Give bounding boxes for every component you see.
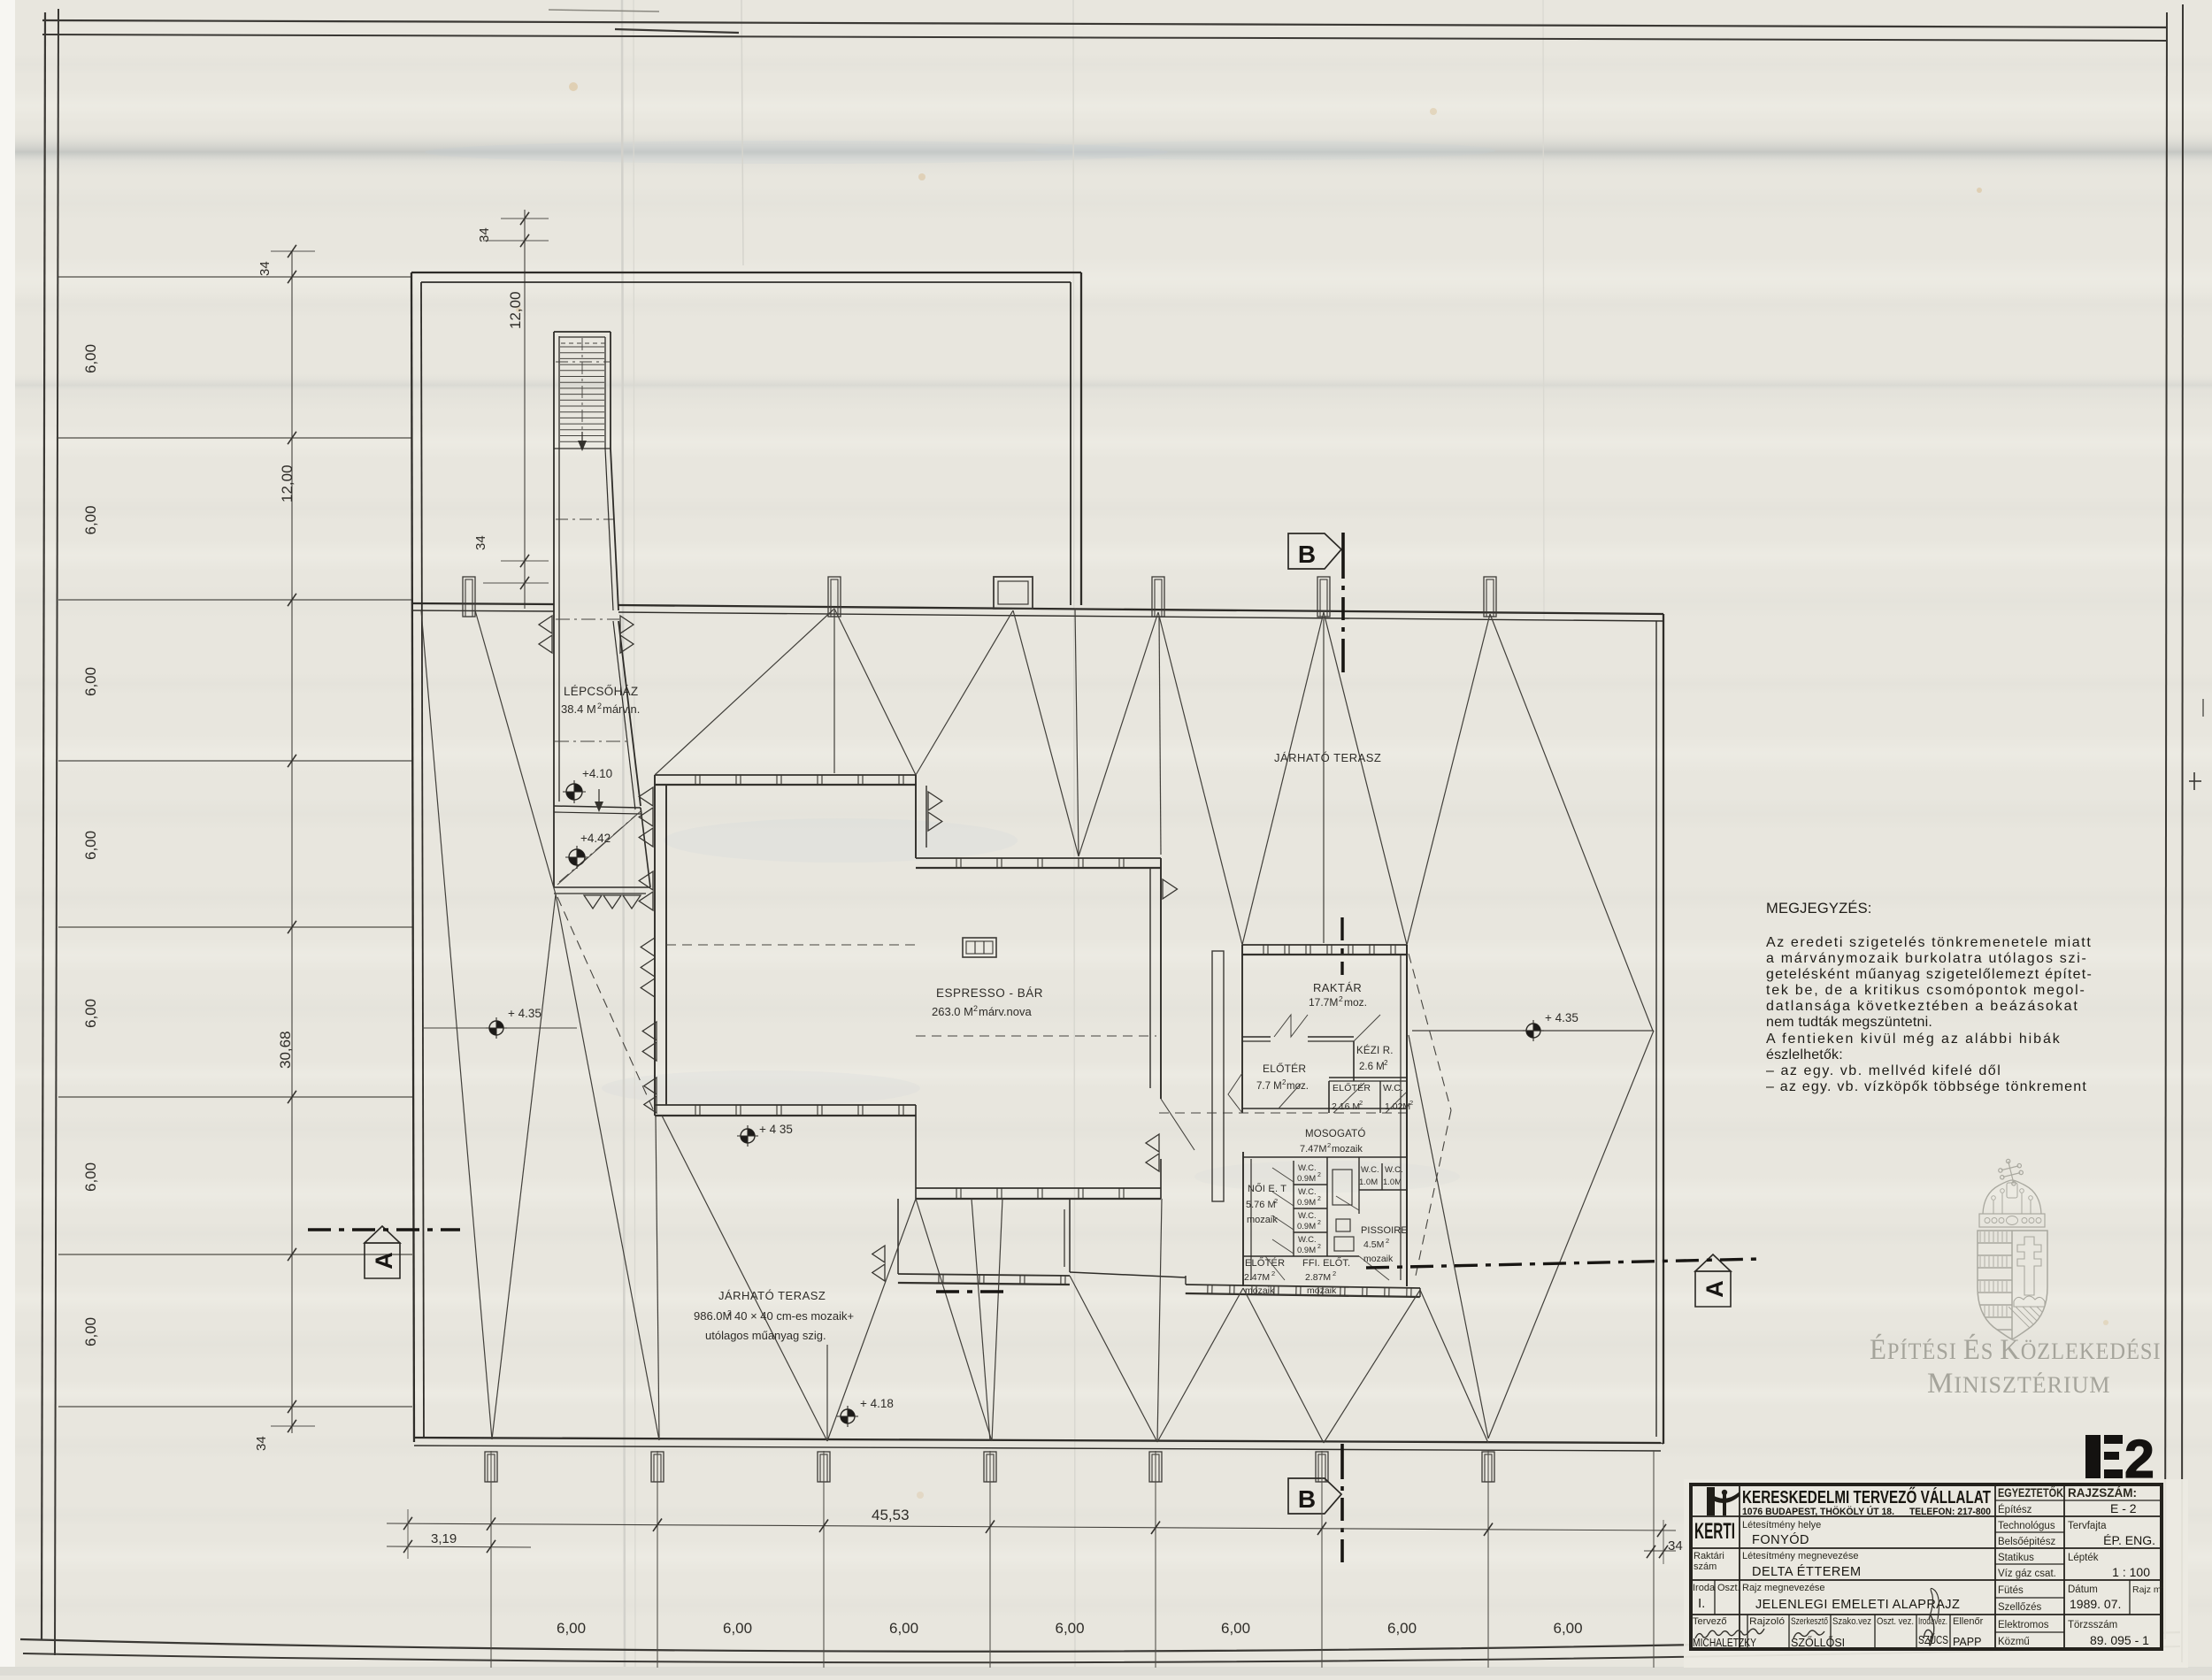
svg-text:W.C.: W.C. [1298, 1235, 1317, 1245]
svg-text:1989. 07.: 1989. 07. [2070, 1597, 2121, 1611]
svg-text:JÁRHATÓ TERASZ: JÁRHATÓ TERASZ [718, 1289, 826, 1302]
svg-text:mozaik: mozaik [1363, 1254, 1394, 1264]
svg-text:2.87M: 2.87M [1305, 1272, 1331, 1283]
svg-text:ESPRESSO - BÁR: ESPRESSO - BÁR [936, 986, 1043, 1000]
svg-text:moz.: moz. [1344, 996, 1367, 1009]
svg-text:5.76 M: 5.76 M [1246, 1200, 1276, 1210]
svg-text:Törzsszám: Törzsszám [2068, 1620, 2117, 1630]
svg-text:A fentieken kivül még az alább: A fentieken kivül még az alábbi hibák [1766, 1032, 2061, 1047]
svg-text:6,00: 6,00 [82, 1162, 99, 1192]
svg-text:38.4 M: 38.4 M [561, 702, 596, 716]
svg-text:Ellenőr: Ellenőr [1953, 1616, 1984, 1627]
svg-text:+ 4.18: + 4.18 [860, 1397, 894, 1410]
svg-text:2: 2 [2160, 1582, 2163, 1590]
svg-text:Fütés: Fütés [1998, 1585, 2024, 1596]
svg-text:2: 2 [727, 1308, 732, 1317]
svg-text:2: 2 [597, 702, 602, 710]
svg-text:Rajzoló: Rajzoló [1749, 1616, 1785, 1627]
svg-text:+4.42: +4.42 [580, 832, 611, 845]
svg-text:6,00: 6,00 [82, 1317, 99, 1346]
svg-text:6,00: 6,00 [1221, 1620, 1250, 1637]
svg-text:mozaik: mozaik [1332, 1144, 1363, 1155]
svg-text:KERESKEDELMI TERVEZŐ VÁLLALA: KERESKEDELMI TERVEZŐ VÁLLALAT [1742, 1487, 1991, 1507]
svg-text:MEGJEGYZÉS:: MEGJEGYZÉS: [1766, 900, 1872, 917]
svg-text:JELENLEGI EMELETI ALAPRAJZ: JELENLEGI EMELETI ALAPRAJZ [1755, 1598, 1960, 1612]
svg-text:Dátum: Dátum [2068, 1584, 2098, 1595]
svg-text:ÉP. ENG.: ÉP. ENG. [2103, 1533, 2155, 1547]
svg-text:FONYÓD: FONYÓD [1752, 1532, 1809, 1547]
svg-text:2: 2 [1271, 1270, 1275, 1277]
svg-text:34: 34 [254, 1436, 269, 1451]
svg-text:2: 2 [1274, 1197, 1278, 1205]
svg-text:PAPP: PAPP [1953, 1636, 1981, 1648]
svg-text:2: 2 [1317, 1172, 1321, 1178]
svg-text:Az eredeti szigetelés tönkreme: Az eredeti szigetelés tönkremenetele mia… [1766, 935, 2091, 950]
svg-text:+ 4.35: + 4.35 [508, 1007, 541, 1020]
svg-text:Rajz megnevezése: Rajz megnevezése [1742, 1583, 1825, 1593]
svg-text:7.47M: 7.47M [1300, 1144, 1327, 1155]
svg-text:W.C.: W.C. [1383, 1083, 1403, 1093]
svg-text:6,00: 6,00 [1387, 1620, 1417, 1637]
svg-text:34: 34 [257, 261, 273, 276]
svg-text:Technológus: Technológus [1998, 1521, 2055, 1531]
svg-text:+ 4 35: + 4 35 [759, 1123, 793, 1136]
svg-text:W.C.: W.C. [1361, 1165, 1379, 1175]
svg-text:6,00: 6,00 [82, 831, 99, 860]
svg-text:Iroda: Iroda [1693, 1583, 1716, 1593]
svg-text:moz.: moz. [1286, 1081, 1309, 1092]
svg-text:W.C.: W.C. [1298, 1211, 1317, 1221]
svg-text:2: 2 [1327, 1141, 1331, 1149]
svg-text:KERTI: KERTI [1694, 1519, 1735, 1544]
svg-text:KÉZI R.: KÉZI R. [1356, 1045, 1394, 1056]
svg-text:MICHALETZKY: MICHALETZKY [1693, 1637, 1757, 1649]
svg-text:89. 095 - 1: 89. 095 - 1 [2090, 1633, 2149, 1647]
svg-text:6,00: 6,00 [889, 1620, 918, 1637]
svg-text:– az egy. vb. vízköpők többség: – az egy. vb. vízköpők többsége tönkreme… [1766, 1079, 2086, 1094]
svg-text:LÉPCSŐHÁZ: LÉPCSŐHÁZ [564, 685, 638, 698]
svg-text:Létesítmény megnevezése: Létesítmény megnevezése [1742, 1551, 1858, 1561]
svg-text:W.C.: W.C. [1298, 1187, 1317, 1197]
svg-text:W.C.: W.C. [1298, 1163, 1317, 1173]
svg-text:észlelhetők:: észlelhetők: [1766, 1047, 1843, 1062]
svg-text:6,00: 6,00 [1554, 1620, 1583, 1637]
svg-text:getelésként műanyag szigetelől: getelésként műanyag szigetelőlemezt épít… [1766, 967, 2092, 982]
svg-text:2: 2 [1317, 1220, 1321, 1226]
svg-text:2: 2 [973, 1004, 978, 1013]
svg-text:Elektromos: Elektromos [1998, 1620, 2049, 1630]
svg-text:Lépték: Lépték [2068, 1553, 2099, 1563]
svg-text:márv.n.: márv.n. [603, 702, 640, 716]
svg-text:I.: I. [1698, 1596, 1705, 1611]
svg-text:45,53: 45,53 [872, 1507, 910, 1523]
svg-text:datlansága következtében a beá: datlansága következtében a beázásokat [1766, 999, 2078, 1014]
svg-text:B: B [1298, 1485, 1316, 1513]
svg-text:márv.nova: márv.nova [979, 1005, 1032, 1018]
svg-text:7.7 M: 7.7 M [1256, 1081, 1282, 1092]
svg-text:1.02M: 1.02M [1385, 1101, 1410, 1112]
svg-text:A: A [1701, 1280, 1728, 1298]
svg-text:2.6 M: 2.6 M [1359, 1062, 1385, 1072]
svg-text:6,00: 6,00 [557, 1620, 586, 1637]
svg-text:2: 2 [1359, 1099, 1363, 1107]
svg-text:Rajz m: Rajz m [2132, 1584, 2162, 1595]
svg-text:NŐI E. T: NŐI E. T [1248, 1182, 1286, 1194]
svg-text:a márványmozaik burkolatra utó: a márványmozaik burkolatra utólagos szi- [1766, 951, 2086, 966]
svg-text:Létesítmény helye: Létesítmény helye [1742, 1520, 1821, 1530]
svg-text:Statikus: Statikus [1998, 1553, 2034, 1563]
svg-text:6,00: 6,00 [1056, 1620, 1085, 1637]
svg-text:263.0 M: 263.0 M [932, 1005, 973, 1018]
svg-text:0.9M: 0.9M [1297, 1246, 1316, 1255]
svg-text:E - 2: E - 2 [2110, 1501, 2137, 1515]
svg-text:2: 2 [1384, 1059, 1388, 1067]
svg-text:2: 2 [1339, 994, 1343, 1003]
svg-text:34: 34 [473, 535, 488, 550]
svg-text:2: 2 [1333, 1270, 1336, 1277]
svg-text:Szellőzés: Szellőzés [1998, 1602, 2041, 1613]
svg-text:12,00: 12,00 [507, 291, 524, 329]
svg-text:JÁRHATÓ TERASZ: JÁRHATÓ TERASZ [1274, 751, 1381, 764]
svg-text:+ 4.35: + 4.35 [1545, 1011, 1578, 1024]
svg-text:34: 34 [477, 227, 492, 242]
svg-text:ELŐTÉR: ELŐTÉR [1245, 1256, 1285, 1269]
svg-text:Szako.vez: Szako.vez [1832, 1616, 1871, 1627]
svg-text:RAJZSZÁM:: RAJZSZÁM: [2068, 1486, 2137, 1500]
svg-text:ELŐTÉR: ELŐTÉR [1263, 1062, 1306, 1075]
svg-text:2.47M: 2.47M [1244, 1272, 1270, 1283]
svg-text:Raktári: Raktári [1694, 1551, 1724, 1561]
svg-text:PISSOIRE: PISSOIRE [1361, 1225, 1408, 1236]
svg-text:MOSOGATÓ: MOSOGATÓ [1305, 1128, 1365, 1139]
svg-text:6,00: 6,00 [82, 344, 99, 373]
svg-text:A: A [371, 1252, 397, 1270]
svg-text:6,00: 6,00 [82, 667, 99, 696]
svg-text:DELTA ÉTTEREM: DELTA ÉTTEREM [1752, 1564, 1862, 1579]
svg-text:MINISZTÉRIUM: MINISZTÉRIUM [1927, 1368, 2111, 1400]
svg-text:2.16 M: 2.16 M [1332, 1101, 1360, 1112]
svg-text:17.7M: 17.7M [1309, 996, 1338, 1009]
svg-text:Szerkesztő: Szerkesztő [1791, 1616, 1828, 1627]
svg-text:Belsőépitész: Belsőépitész [1998, 1537, 2055, 1547]
svg-text:2: 2 [1409, 1099, 1413, 1107]
svg-text:40 × 40 cm-es mozaik+: 40 × 40 cm-es mozaik+ [734, 1309, 854, 1323]
svg-text:0.9M: 0.9M [1297, 1198, 1316, 1208]
svg-text:30,68: 30,68 [277, 1031, 294, 1069]
svg-text:ELŐTÉR: ELŐTÉR [1333, 1081, 1371, 1093]
svg-text:+4.10: +4.10 [582, 767, 612, 780]
svg-text:34: 34 [1668, 1538, 1683, 1553]
svg-text:B: B [1298, 541, 1316, 568]
svg-text:SZŐLLŐSI: SZŐLLŐSI [1791, 1636, 1845, 1649]
svg-text:1.0M: 1.0M [1383, 1178, 1402, 1187]
svg-text:nem tudták megszüntetni.: nem tudták megszüntetni. [1766, 1015, 1932, 1030]
svg-text:Tervező: Tervező [1693, 1616, 1727, 1627]
svg-text:Tervfajta: Tervfajta [2068, 1521, 2107, 1531]
svg-text:EGYEZTETŐK: EGYEZTETŐK [1998, 1486, 2063, 1500]
svg-text:1076 BUDAPEST, THÖKÖLY ÚT 18.: 1076 BUDAPEST, THÖKÖLY ÚT 18. [1742, 1506, 1894, 1517]
svg-text:Víz gáz csat.: Víz gáz csat. [1998, 1569, 2056, 1579]
svg-text:TELEFON: 217-800: TELEFON: 217-800 [1909, 1507, 1991, 1517]
svg-text:utólagos műanyag szig.: utólagos műanyag szig. [705, 1329, 826, 1342]
svg-text:6,00: 6,00 [82, 505, 99, 534]
svg-text:3,19: 3,19 [431, 1531, 457, 1546]
svg-text:2: 2 [1317, 1196, 1321, 1202]
svg-text:Oszt. vez.: Oszt. vez. [1877, 1616, 1914, 1627]
svg-text:– az egy. vb. mellvéd kifelé d: – az egy. vb. mellvéd kifelé dől [1766, 1063, 2001, 1078]
svg-text:4.5M: 4.5M [1363, 1239, 1384, 1250]
svg-text:FFI. ELŐT.: FFI. ELŐT. [1302, 1256, 1350, 1269]
svg-text:0.9M: 0.9M [1297, 1222, 1316, 1231]
svg-text:12,00: 12,00 [279, 464, 296, 502]
svg-text:986.0M: 986.0M [694, 1309, 732, 1323]
svg-text:6,00: 6,00 [723, 1620, 752, 1637]
svg-text:szám: szám [1694, 1561, 1717, 1572]
svg-text:W.C.: W.C. [1385, 1165, 1403, 1175]
svg-text:Közmű: Közmű [1998, 1637, 2030, 1647]
svg-text:0.9M: 0.9M [1297, 1174, 1316, 1184]
svg-text:Építész: Építész [1998, 1504, 2032, 1515]
svg-text:2: 2 [1386, 1237, 1389, 1245]
svg-text:Oszt.: Oszt. [1717, 1583, 1740, 1593]
svg-text:1.0M: 1.0M [1359, 1178, 1378, 1187]
svg-text:2: 2 [1317, 1244, 1321, 1250]
svg-text:RAKTÁR: RAKTÁR [1313, 981, 1362, 994]
svg-text:1 : 100: 1 : 100 [2112, 1565, 2150, 1579]
svg-text:6,00: 6,00 [82, 999, 99, 1028]
